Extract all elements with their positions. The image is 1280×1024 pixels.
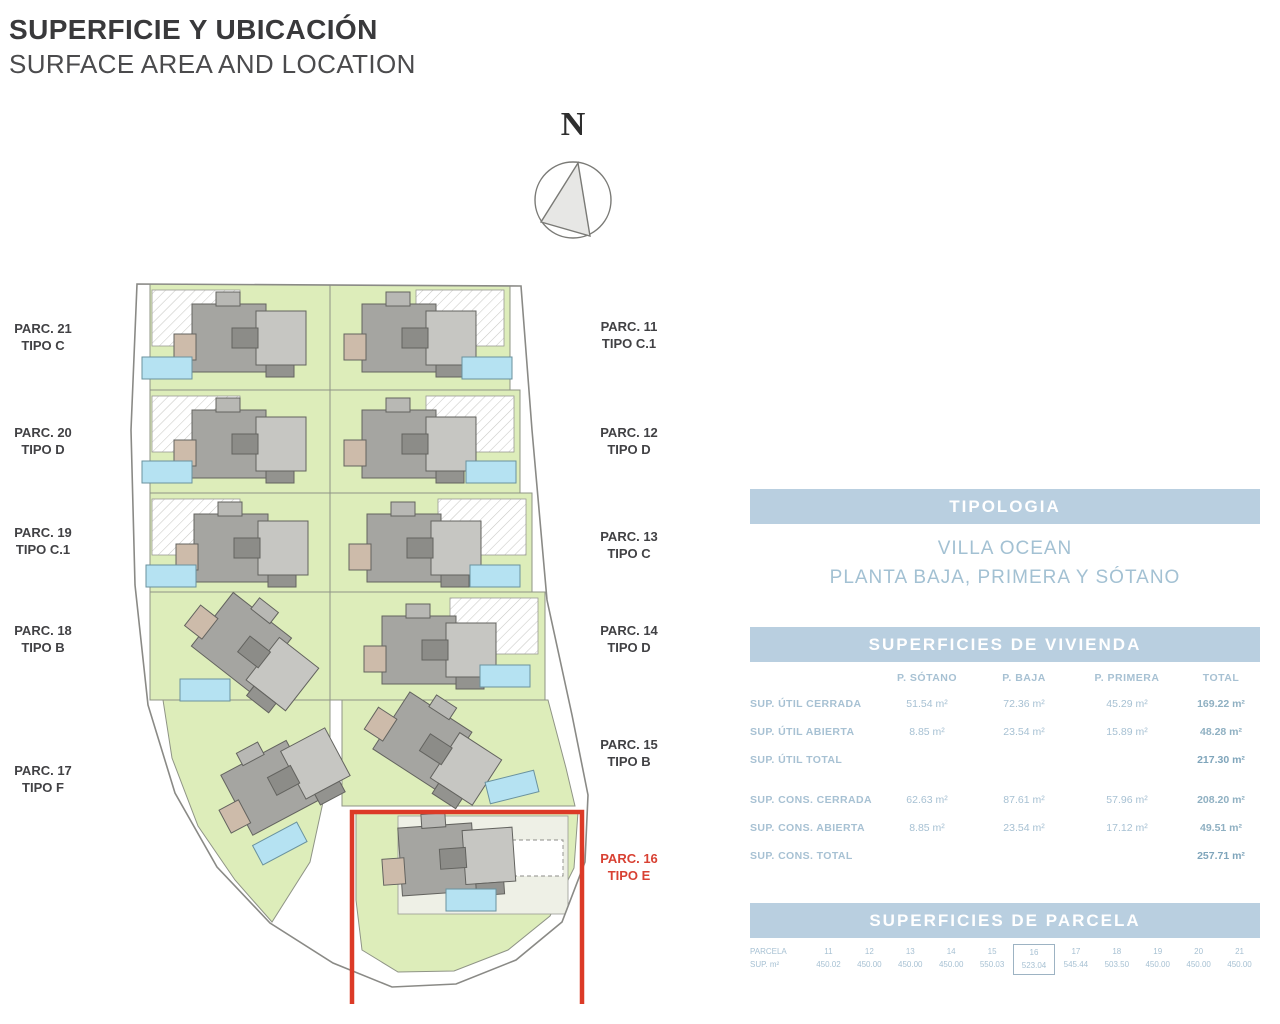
- compass-north-label: N: [528, 110, 618, 140]
- vivienda-header-bar: SUPERFICIES DE VIVIENDA: [750, 627, 1260, 662]
- parcela-col-12: 12 450.00: [849, 944, 890, 975]
- page-header: SUPERFICIE Y UBICACIÓN SURFACE AREA AND …: [9, 14, 416, 80]
- tipologia-header-bar: TIPOLOGIA: [750, 489, 1260, 524]
- parcela-col-14: 14 450.00: [931, 944, 972, 975]
- parcela-header-bar: SUPERFICIES DE PARCELA: [750, 903, 1260, 938]
- parcela-col-15: 15 550.03: [972, 944, 1013, 975]
- parcel-label-15: PARC. 15 TIPO B: [586, 736, 672, 770]
- parcela-col-20: 20 450.00: [1178, 944, 1219, 975]
- vivienda-table: P. SÓTANO P. BAJA P. PRIMERA TOTAL SUP. …: [750, 666, 1260, 870]
- parcel-label-11: PARC. 11 TIPO C.1: [586, 318, 672, 352]
- parcel-label-20: PARC. 20 TIPO D: [0, 424, 86, 458]
- page-subtitle: SURFACE AREA AND LOCATION: [9, 49, 416, 80]
- parcela-table: PARCELA SUP. m² 11 450.02 12 450.00 13 4…: [750, 944, 1260, 975]
- table-row: SUP. CONS. CERRADA 62.63 m² 87.61 m² 57.…: [750, 786, 1260, 814]
- vivienda-column-headers: P. SÓTANO P. BAJA P. PRIMERA TOTAL: [750, 666, 1260, 690]
- parcela-col-21: 21 450.00: [1219, 944, 1260, 975]
- parcel-label-18: PARC. 18 TIPO B: [0, 622, 86, 656]
- table-row: SUP. CONS. ABIERTA 8.85 m² 23.54 m² 17.1…: [750, 814, 1260, 842]
- parcela-row-labels: PARCELA SUP. m²: [750, 944, 808, 975]
- parcela-col-17: 17 545.44: [1055, 944, 1096, 975]
- parcel-label-19: PARC. 19 TIPO C.1: [0, 524, 86, 558]
- compass: N: [528, 110, 618, 255]
- compass-icon: [528, 140, 618, 250]
- tipologia-description: VILLA OCEAN PLANTA BAJA, PRIMERA Y SÓTAN…: [750, 538, 1260, 589]
- parcela-col-18: 18 503.50: [1096, 944, 1137, 975]
- table-row: SUP. CONS. TOTAL 257.71 m²: [750, 842, 1260, 870]
- parcela-col-13: 13 450.00: [890, 944, 931, 975]
- parcel-label-21: PARC. 21 TIPO C: [0, 320, 86, 354]
- parcel-label-12: PARC. 12 TIPO D: [586, 424, 672, 458]
- tipologia-line2: PLANTA BAJA, PRIMERA Y SÓTANO: [750, 567, 1260, 589]
- parcela-col-11: 11 450.02: [808, 944, 849, 975]
- table-row: SUP. ÚTIL ABIERTA 8.85 m² 23.54 m² 15.89…: [750, 718, 1260, 746]
- table-row: SUP. ÚTIL TOTAL 217.30 m²: [750, 746, 1260, 774]
- table-row: SUP. ÚTIL CERRADA 51.54 m² 72.36 m² 45.2…: [750, 690, 1260, 718]
- parcel-label-17: PARC. 17 TIPO F: [0, 762, 86, 796]
- parcela-col-16-highlighted: 16 523.04: [1013, 944, 1056, 975]
- parcel-label-14: PARC. 14 TIPO D: [586, 622, 672, 656]
- parcel-label-13: PARC. 13 TIPO C: [586, 528, 672, 562]
- parcel-label-16-highlighted: PARC. 16 TIPO E: [586, 850, 672, 884]
- tipologia-line1: VILLA OCEAN: [750, 538, 1260, 560]
- parcela-col-19: 19 450.00: [1137, 944, 1178, 975]
- brochure-page: SUPERFICIE Y UBICACIÓN SURFACE AREA AND …: [0, 0, 1280, 1024]
- page-title: SUPERFICIE Y UBICACIÓN: [9, 14, 416, 46]
